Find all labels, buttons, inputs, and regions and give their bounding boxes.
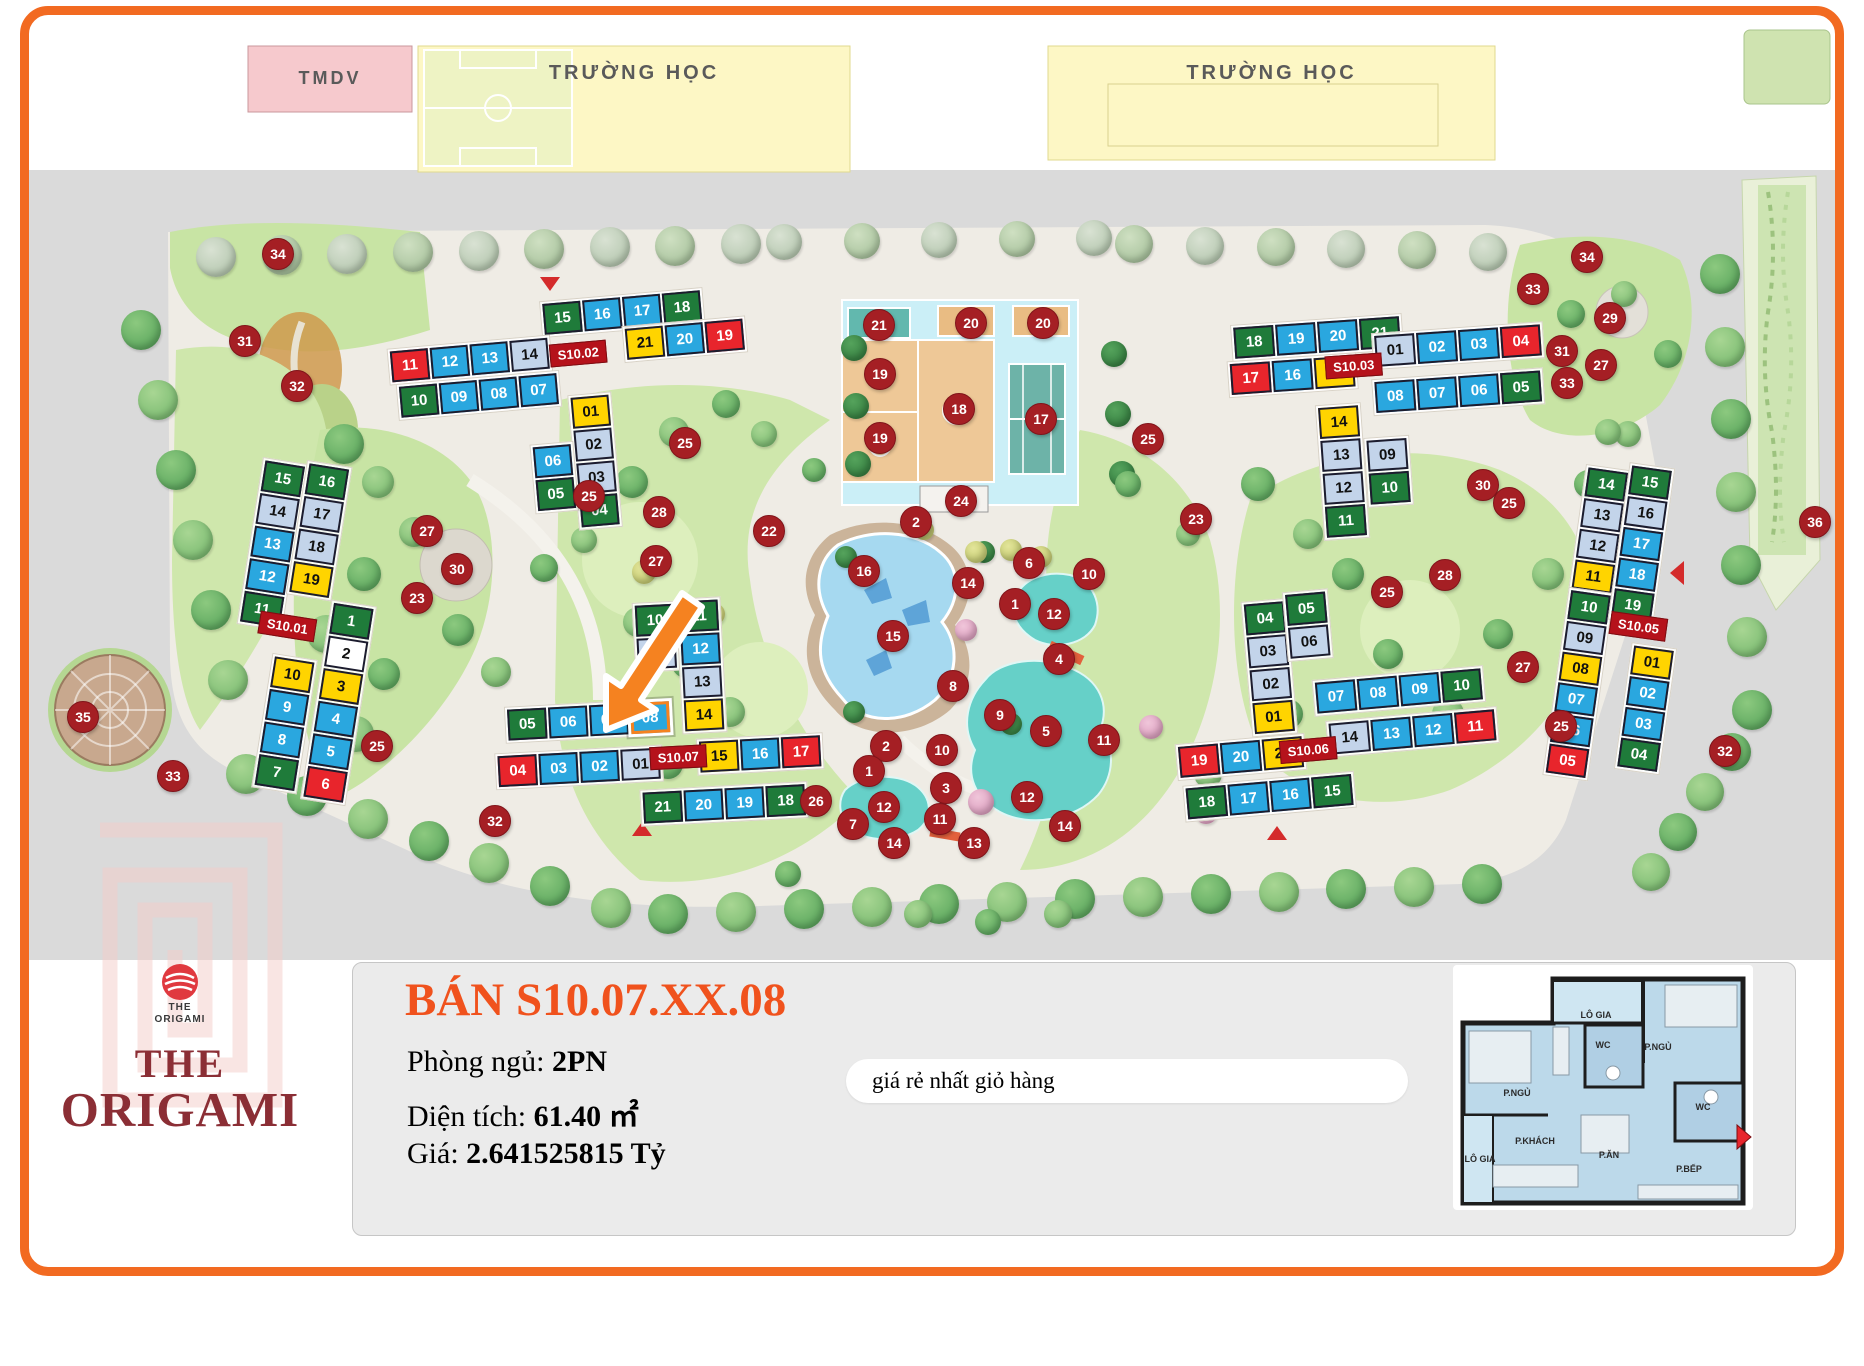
unit-cell-05[interactable]: 05 [1500,370,1542,404]
unit-cell-05[interactable]: 05 [507,708,548,741]
unit-cell-13[interactable]: 13 [1370,717,1413,751]
tree-icon [1705,327,1745,367]
map-badge: 27 [1585,349,1617,381]
map-badge: 25 [1493,487,1525,519]
tree-icon [327,234,367,274]
unit-cell-16[interactable]: 16 [582,297,623,331]
unit-cell-11[interactable]: 11 [1325,504,1367,538]
unit-cell-12[interactable]: 12 [430,345,471,379]
unit-cell-16[interactable]: 16 [1269,778,1312,812]
tree-icon [802,458,826,482]
unit-cell-01[interactable]: 01 [571,395,612,429]
unit-group: 0605 [529,441,579,515]
unit-cell-19[interactable]: 19 [1275,322,1317,356]
unit-cell-12[interactable]: 12 [1412,713,1455,747]
selection-arrow-icon [566,522,766,742]
brand-title-origami: ORIGAMI [55,1081,305,1138]
tree-icon [843,701,865,723]
unit-cell-4[interactable]: 4 [314,701,358,738]
map-badge: 12 [868,791,900,823]
tree-icon [1483,619,1513,649]
unit-cell-17[interactable]: 17 [1230,361,1272,395]
unit-cell-04[interactable]: 04 [1244,601,1287,635]
tree-icon [1044,900,1072,928]
zone-label-school-2: TRƯỜNG HỌC [1048,62,1495,85]
tree-icon [843,393,869,419]
unit-cell-02[interactable]: 02 [573,427,614,461]
map-badge: 33 [157,760,189,792]
unit-cell-14[interactable]: 14 [255,493,299,530]
unit-cell-5[interactable]: 5 [309,733,353,770]
floorplan-room-label: P.NGỦ [1644,1042,1671,1052]
unit-cell-05[interactable]: 05 [1546,744,1590,778]
tree-icon [1332,558,1364,590]
tree-icon [1716,472,1756,512]
unit-cell-14[interactable]: 14 [509,338,550,372]
unit-cell-10[interactable]: 10 [1369,471,1411,505]
map-badge: 32 [281,370,313,402]
map-badge: 35 [67,701,99,733]
bedrooms-line: Phòng ngủ: 2PN [407,1045,607,1079]
unit-cell-15[interactable]: 15 [261,460,305,497]
map-badge: 18 [943,393,975,425]
tree-icon [1632,853,1670,891]
unit-cell-21[interactable]: 21 [625,326,666,360]
unit-cell-20[interactable]: 20 [1317,319,1359,353]
tree-icon [1186,227,1224,265]
unit-cell-02[interactable]: 02 [1626,676,1670,710]
tree-icon [716,892,756,932]
unit-cell-15[interactable]: 15 [1628,465,1672,499]
map-badge: 25 [669,427,701,459]
tree-icon [655,226,695,266]
tree-icon [1532,558,1564,590]
area-label: Diện tích: [407,1100,526,1133]
map-badge: 26 [800,785,832,817]
unit-cell-18[interactable]: 18 [1615,558,1659,592]
unit-cell-15[interactable]: 15 [542,301,583,335]
unit-cell-19[interactable]: 19 [724,786,765,819]
unit-cell-10[interactable]: 10 [1567,590,1611,624]
map-badge: 25 [573,480,605,512]
tree-icon [1654,340,1682,368]
price-line: Giá: 2.641525815 Tỷ [407,1137,666,1171]
unit-cell-04[interactable]: 04 [1617,738,1661,772]
bedrooms-label: Phòng ngủ: [407,1045,545,1078]
map-badge: 33 [1517,273,1549,305]
map-badge: 29 [1594,302,1626,334]
note-input[interactable] [846,1059,1408,1103]
map-badge: 23 [401,582,433,614]
unit-group: 0506 [1282,588,1334,662]
unit-cell-01[interactable]: 01 [1630,645,1674,679]
tree-icon [173,520,213,560]
tree-icon [156,450,196,490]
unit-cell-04[interactable]: 04 [1500,324,1542,358]
unit-cell-07[interactable]: 07 [518,373,559,407]
unit-cell-13[interactable]: 13 [1320,438,1362,472]
unit-cell-20[interactable]: 20 [665,322,706,356]
tree-icon [968,789,994,815]
tree-icon [1101,341,1127,367]
tree-icon [921,222,957,258]
unit-group: 0910 [1363,435,1414,508]
unit-cell-09[interactable]: 09 [1366,438,1408,472]
tree-icon [1115,225,1153,263]
map-badge: 7 [837,808,869,840]
map-badge: 25 [1371,576,1403,608]
unit-cell-16[interactable]: 16 [1624,496,1668,530]
tree-icon [196,237,236,277]
tree-icon [481,657,511,687]
unit-cell-05[interactable]: 05 [536,477,577,511]
unit-cell-10[interactable]: 10 [399,384,440,418]
unit-cell-18[interactable]: 18 [1233,325,1275,359]
unit-cell-11[interactable]: 11 [390,348,431,382]
unit-cell-06[interactable]: 06 [1288,624,1331,658]
unit-cell-03[interactable]: 03 [538,752,579,785]
listing-info-panel: BÁN S10.07.XX.08 Phòng ngủ: 2PN Diện tíc… [352,962,1796,1236]
map-badge: 19 [864,358,896,390]
map-badge: 9 [984,699,1016,731]
tree-icon [442,614,474,646]
map-badge: 14 [952,567,984,599]
unit-cell-08[interactable]: 08 [1374,379,1416,413]
zone-label-school-1: TRƯỜNG HỌC [418,62,850,85]
map-badge: 34 [262,238,294,270]
brand-small-the: THE [55,1002,305,1014]
tree-icon [841,335,867,361]
unit-cell-13[interactable]: 13 [1580,498,1624,532]
tree-icon [1327,230,1365,268]
unit-cell-18[interactable]: 18 [1186,785,1229,819]
map-badge: 13 [958,827,990,859]
map-badge: 17 [1025,403,1057,435]
unit-cell-9[interactable]: 9 [265,689,309,726]
tree-icon [1732,690,1772,730]
map-badge: 32 [479,805,511,837]
tree-icon [775,861,801,887]
area-line: Diện tích: 61.40 ㎡ [407,1091,639,1135]
floorplan-room-label: P.ĂN [1599,1150,1619,1160]
map-badge: 21 [863,309,895,341]
tree-icon [845,451,871,477]
tree-icon [1373,639,1403,669]
map-badge: 5 [1030,715,1062,747]
tree-icon [1721,545,1761,585]
tree-icon [721,224,761,264]
unit-cell-15[interactable]: 15 [1311,774,1354,808]
unit-cell-09[interactable]: 09 [1399,672,1442,706]
tree-icon [324,424,364,464]
unit-cell-08[interactable]: 08 [1357,676,1400,710]
unit-cell-07[interactable]: 07 [1416,376,1458,410]
unit-cell-11[interactable]: 11 [1454,709,1497,743]
unit-cell-10[interactable]: 10 [270,656,314,693]
tree-icon [1686,773,1724,811]
unit-cell-17[interactable]: 17 [300,496,344,533]
tree-icon [409,821,449,861]
origami-logo-icon [160,962,200,1002]
unit-cell-2[interactable]: 2 [324,636,368,673]
unit-cell-14[interactable]: 14 [1585,467,1629,501]
tree-icon [904,900,932,928]
map-badge: 3 [930,772,962,804]
map-badge: 31 [1546,335,1578,367]
unit-cell-19[interactable]: 19 [289,561,333,598]
tree-icon [1711,399,1751,439]
floorplan-room-label: WC [1696,1102,1711,1112]
tree-icon [1293,519,1323,549]
unit-cell-3[interactable]: 3 [319,668,363,705]
tree-icon [1191,874,1231,914]
unit-cell-01[interactable]: 01 [1252,700,1295,734]
tree-icon [1595,419,1621,445]
unit-group: 14131211 [1315,402,1370,541]
unit-cell-17[interactable]: 17 [1227,781,1270,815]
unit-cell-12[interactable]: 12 [1323,471,1365,505]
tree-icon [1394,867,1434,907]
brand-small-origami: ORIGAMI [55,1014,305,1026]
unit-cell-7[interactable]: 7 [255,754,299,791]
map-badge: 11 [924,803,956,835]
unit-cell-19[interactable]: 19 [1178,743,1221,777]
unit-cell-20[interactable]: 20 [1220,740,1263,774]
unit-cell-09[interactable]: 09 [439,380,480,414]
tree-icon [1659,813,1697,851]
unit-cell-08[interactable]: 08 [479,377,520,411]
floorplan-room-label: LÔ GIA [1581,1010,1612,1020]
unit-cell-16[interactable]: 16 [740,737,781,770]
tree-icon [1139,715,1163,739]
zone-label-tmdv: TMDV [248,68,412,89]
tree-icon [393,232,433,272]
unit-cell-13[interactable]: 13 [469,341,510,375]
tree-icon [975,909,1001,935]
unit-cell-04[interactable]: 04 [497,754,538,787]
map-badge: 31 [229,325,261,357]
unit-cell-06[interactable]: 06 [533,444,574,478]
floorplan-labels: LÔ GIAWCP.NGỦP.NGỦWCP.KHÁCHP.ĂNP.BẾPLÔ G… [1453,965,1753,1210]
map-badge: 12 [1038,598,1070,630]
map-badge: 11 [1088,724,1120,756]
tree-icon [1257,228,1295,266]
map-badge: 15 [877,620,909,652]
tree-icon [1115,471,1141,497]
tree-icon [965,541,987,563]
tree-icon [999,221,1035,257]
map-badge: 10 [926,734,958,766]
map-badge: 36 [1799,506,1831,538]
floorplan-room-label: P.BẾP [1676,1164,1702,1174]
unit-cell-12[interactable]: 12 [1576,529,1620,563]
map-badge: 25 [361,730,393,762]
map-badge: 10 [1073,558,1105,590]
map-badge: 24 [945,485,977,517]
unit-cell-08[interactable]: 08 [1559,652,1603,686]
tree-icon [530,554,558,582]
bedrooms-value: 2PN [552,1045,607,1078]
listing-title: BÁN S10.07.XX.08 [405,973,786,1027]
tree-icon [591,888,631,928]
unit-cell-09[interactable]: 09 [1563,621,1607,655]
tree-icon [712,390,740,418]
page: TMDV TRƯỜNG HỌC TRƯỜNG HỌC 1514131211109… [0,0,1864,1366]
floorplan-room-label: P.NGỦ [1503,1088,1530,1098]
building-plate: S10.07 [649,744,707,770]
map-badge: 23 [1180,503,1212,535]
unit-cell-20[interactable]: 20 [683,788,724,821]
map-badge: 34 [1571,241,1603,273]
unit-cell-07[interactable]: 07 [1315,679,1358,713]
tree-icon [459,231,499,271]
unit-cell-16[interactable]: 16 [305,463,349,500]
tree-icon [590,227,630,267]
unit-cell-21[interactable]: 21 [643,791,684,824]
map-badge: 28 [1429,559,1461,591]
map-badge: 1 [853,755,885,787]
unit-cell-02[interactable]: 02 [1416,330,1458,364]
price-label: Giá: [407,1137,459,1170]
map-badge: 2 [900,506,932,538]
tree-icon [1727,617,1767,657]
unit-cell-02[interactable]: 02 [1250,667,1293,701]
map-badge: 14 [878,827,910,859]
unit-cell-03[interactable]: 03 [1247,634,1290,668]
tree-icon [348,799,388,839]
floorplan-room-label: P.KHÁCH [1515,1136,1555,1146]
unit-cell-06[interactable]: 06 [1458,373,1500,407]
unit-cell-10[interactable]: 10 [1440,668,1483,702]
unit-cell-19[interactable]: 19 [704,319,745,353]
tree-icon [121,310,161,350]
tree-icon [648,894,688,934]
map-badge: 8 [937,670,969,702]
unit-cell-02[interactable]: 02 [579,750,620,783]
tree-icon [347,557,381,591]
tree-icon [844,223,880,259]
tree-icon [368,658,400,690]
tree-icon [852,887,892,927]
map-badge: 27 [411,515,443,547]
unit-cell-16[interactable]: 16 [1272,358,1314,392]
tree-icon [1259,872,1299,912]
tree-icon [1469,233,1507,271]
unit-cell-17[interactable]: 17 [1620,527,1664,561]
tree-icon [1241,467,1275,501]
area-value: 61.40 ㎡ [534,1100,639,1133]
map-badge: 30 [441,553,473,585]
map-badge: 14 [1049,810,1081,842]
map-badge: 25 [1132,423,1164,455]
map-badge: 27 [1507,651,1539,683]
unit-cell-05[interactable]: 05 [1285,592,1328,626]
tree-icon [362,466,394,498]
map-badge: 33 [1551,367,1583,399]
unit-cell-17[interactable]: 17 [781,735,822,768]
map-badge: 6 [1013,547,1045,579]
tree-icon [191,590,231,630]
tree-icon [616,466,648,498]
brand-title-the: THE [55,1040,305,1087]
map-badge: 32 [1709,735,1741,767]
brand-logo: THE ORIGAMI THE ORIGAMI [55,962,305,1162]
map-badge: 16 [848,555,880,587]
tree-icon [1557,300,1585,328]
unit-cell-6[interactable]: 6 [303,766,347,803]
floorplan-image: LÔ GIAWCP.NGỦP.NGỦWCP.KHÁCHP.ĂNP.BẾPLÔ G… [1453,965,1753,1210]
price-value: 2.641525815 Tỷ [466,1137,665,1170]
tree-icon [751,421,777,447]
unit-cell-03[interactable]: 03 [1458,327,1500,361]
map-badge: 20 [955,307,987,339]
map-badge: 20 [1027,307,1059,339]
tree-icon [1700,254,1740,294]
unit-cell-18[interactable]: 18 [294,529,338,566]
tree-icon [766,224,802,260]
map-badge: 12 [1011,781,1043,813]
unit-cell-03[interactable]: 03 [1622,707,1666,741]
unit-cell-8[interactable]: 8 [260,722,304,759]
unit-cell-1[interactable]: 1 [329,603,373,640]
tree-icon [524,229,564,269]
unit-cell-12[interactable]: 12 [245,558,289,595]
tree-icon [1076,220,1112,256]
tree-icon [530,866,570,906]
building-plate: S10.03 [1324,352,1383,379]
floorplan-room-label: LÔ GIA [1465,1154,1496,1164]
map-badge: 19 [864,422,896,454]
tree-icon [1105,401,1131,427]
tree-icon [784,889,824,929]
unit-cell-13[interactable]: 13 [250,526,294,563]
tree-icon [208,660,248,700]
tree-icon [1462,864,1502,904]
floorplan-room-label: WC [1596,1040,1611,1050]
tree-icon [1123,877,1163,917]
unit-cell-14[interactable]: 14 [1318,405,1360,439]
map-badge: 1 [999,588,1031,620]
tree-icon [955,619,977,641]
map-badge: 25 [1545,710,1577,742]
map-badge: 4 [1043,643,1075,675]
